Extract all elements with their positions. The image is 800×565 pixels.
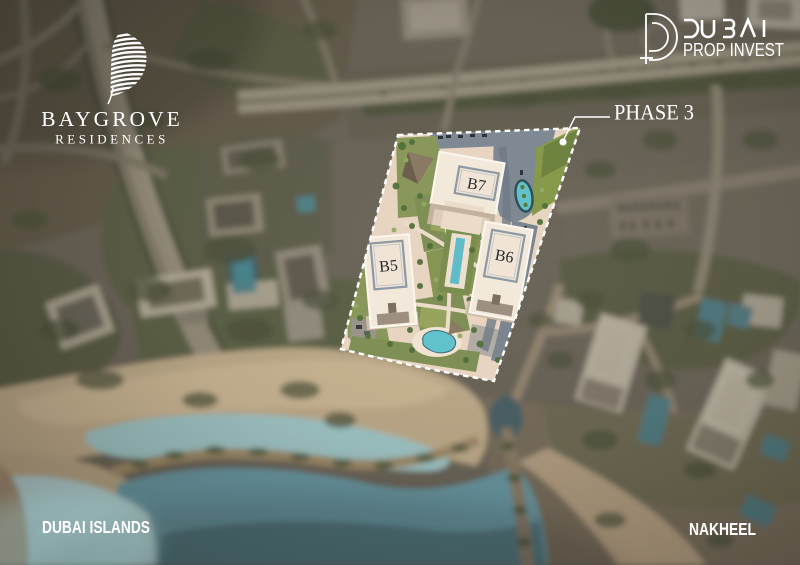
svg-text:B5: B5 <box>379 257 399 276</box>
svg-text:NAKHEEL: NAKHEEL <box>689 519 756 539</box>
svg-text:B6: B6 <box>494 247 515 267</box>
svg-text:B7: B7 <box>466 175 487 195</box>
svg-text:PROP INVEST: PROP INVEST <box>683 40 784 60</box>
svg-text:PHASE 3: PHASE 3 <box>614 100 694 125</box>
svg-text:BAYGROVE: BAYGROVE <box>41 107 182 131</box>
svg-text:DUBAI ISLANDS: DUBAI ISLANDS <box>42 517 150 537</box>
svg-text:RESIDENCES: RESIDENCES <box>55 132 169 147</box>
